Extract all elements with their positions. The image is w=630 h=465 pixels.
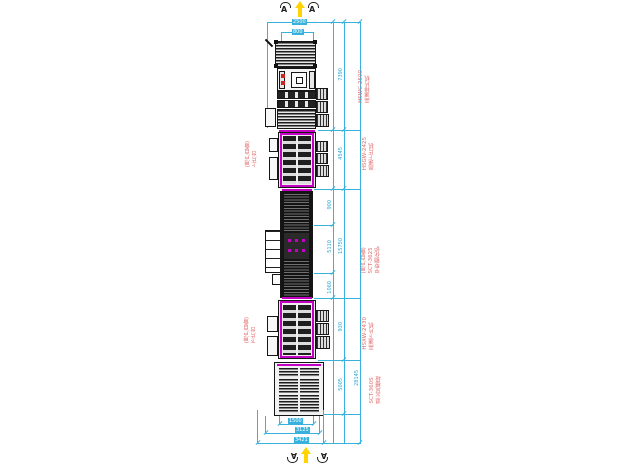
machine1-right-unit bbox=[316, 114, 329, 127]
drive-marker bbox=[288, 239, 291, 242]
indicator-red bbox=[281, 74, 285, 78]
section-letter: A bbox=[291, 450, 297, 461]
flow-direction-arrow-bottom-icon bbox=[301, 447, 311, 463]
furnace-model: SCT-3625 bbox=[368, 246, 374, 274]
dim-connector bbox=[314, 298, 361, 299]
drive-marker bbox=[288, 249, 291, 252]
dim-label-m4-zone: 930 bbox=[339, 322, 344, 332]
platform-step bbox=[272, 274, 281, 285]
machine5-belt-top bbox=[277, 364, 321, 366]
machine2-left-name: 上片台 bbox=[252, 141, 258, 167]
dim-label-furnace-seg1: 900 bbox=[328, 200, 333, 210]
transfer-conveyor-line-3 bbox=[282, 297, 312, 299]
label-machine5: SCT-360S 退火风栅段 bbox=[369, 376, 382, 404]
machine5-model: SCT-360S bbox=[369, 376, 375, 404]
dim-label-bottom-mid: 3125 bbox=[295, 427, 310, 433]
drive-marker bbox=[302, 249, 305, 252]
production-line-drawing: A A 2500 800 7390 4545 900 5110 1060 157… bbox=[0, 0, 630, 465]
machine4-body bbox=[278, 300, 316, 359]
section-letter: A bbox=[281, 4, 287, 15]
furnace-note: (用户自备) bbox=[361, 246, 367, 274]
dim-line-bottom-outer bbox=[257, 443, 324, 444]
machine2-model: HSGW-2425 bbox=[362, 137, 368, 170]
dim-label-furnace-total: 15750 bbox=[339, 238, 344, 254]
machine4-left-attachment bbox=[267, 316, 278, 332]
dim-label-furnace-seg3: 1060 bbox=[328, 281, 333, 294]
dim-line-bottom-mid bbox=[265, 433, 320, 434]
machine5-name: 退火风栅段 bbox=[376, 376, 382, 404]
ext-line bbox=[323, 410, 324, 444]
dim-label-top-inner: 800 bbox=[292, 29, 304, 35]
dim-tick bbox=[358, 440, 363, 445]
dim-connector bbox=[324, 443, 361, 444]
drive-marker bbox=[302, 239, 305, 242]
control-center-port bbox=[296, 77, 303, 84]
dim-connector bbox=[318, 130, 361, 131]
machine4-right-unit bbox=[316, 336, 330, 349]
dim-label-m2-zone: 4545 bbox=[339, 147, 344, 160]
dim-connector bbox=[314, 189, 361, 190]
machine2-belt-bottom bbox=[281, 185, 313, 187]
machine4-left-note: (用户自备) bbox=[244, 317, 250, 343]
arrow-stem bbox=[298, 8, 302, 17]
flow-direction-arrow-top-icon bbox=[295, 1, 305, 17]
machine1-vent-row bbox=[277, 91, 316, 99]
section-marker-top-left: A bbox=[280, 2, 292, 15]
indicator-red bbox=[281, 81, 285, 85]
machine2-belt-right bbox=[312, 133, 314, 187]
machine2-left-note: (用户自备) bbox=[245, 141, 251, 167]
furnace-drive-band bbox=[284, 233, 309, 259]
machine4-rack-right bbox=[298, 305, 311, 355]
dim-label-top-outer: 2500 bbox=[292, 19, 307, 25]
dim-label-m5-zone: 5005 bbox=[339, 378, 344, 391]
machine2-right-unit bbox=[316, 165, 329, 177]
dim-label-overall: 28145 bbox=[355, 370, 360, 386]
ext-line bbox=[257, 410, 258, 444]
machine2-body bbox=[278, 132, 316, 188]
machine4-belt-bottom bbox=[281, 356, 313, 358]
dim-connector bbox=[318, 360, 361, 361]
machine1-vent-row bbox=[277, 100, 316, 108]
control-right-strip bbox=[309, 71, 315, 89]
section-letter: A bbox=[309, 4, 315, 15]
arrow-head bbox=[301, 447, 311, 454]
machine1-left-attachment bbox=[265, 108, 276, 127]
machine2-right-unit bbox=[316, 153, 328, 164]
machine4-left-attachment bbox=[267, 336, 278, 356]
machine1-name: 高速排片机 bbox=[365, 70, 371, 103]
machine2-rack-left bbox=[283, 136, 296, 184]
machine1-model: HSWC-2500 bbox=[358, 70, 364, 103]
section-marker-top-right: A bbox=[308, 2, 320, 15]
machine1-right-unit bbox=[316, 101, 328, 113]
furnace-name: 平型钢化炉 bbox=[375, 246, 381, 274]
dim-line-bottom-inner bbox=[279, 424, 314, 425]
machine2-name: 高速上片机 bbox=[369, 137, 375, 170]
machine2-rack-right bbox=[298, 136, 311, 184]
control-center-housing bbox=[291, 72, 307, 88]
machine2-belt-top bbox=[281, 133, 313, 135]
corner-cap bbox=[274, 40, 278, 44]
machine1-control-section bbox=[277, 68, 316, 91]
drive-marker bbox=[295, 239, 298, 242]
corner-cap bbox=[313, 40, 317, 44]
machine4-right-unit bbox=[316, 310, 329, 322]
ext-line bbox=[281, 32, 282, 41]
furnace-body bbox=[280, 191, 313, 298]
furnace-rail-right bbox=[309, 192, 312, 297]
machine5-cell bbox=[300, 379, 319, 393]
machine5-body bbox=[274, 362, 324, 416]
machine1-right-unit bbox=[316, 88, 328, 100]
machine1-roller-bed-top bbox=[275, 41, 316, 68]
machine5-cell bbox=[300, 368, 319, 377]
machine5-cell bbox=[279, 379, 298, 393]
machine5-cell bbox=[279, 395, 298, 413]
dim-label-m1-zone: 7390 bbox=[339, 68, 344, 81]
machine2-left-attachment bbox=[269, 157, 278, 180]
dim-chain-mid bbox=[344, 22, 345, 443]
machine4-rack-left bbox=[283, 305, 296, 355]
control-left-strip bbox=[279, 71, 285, 89]
dim-label-bottom-inner: 1500 bbox=[288, 418, 303, 424]
label-machine2-left: (用户自备) 上片台 bbox=[245, 141, 258, 167]
label-furnace: (用户自备) SCT-3625 平型钢化炉 bbox=[361, 246, 381, 274]
label-machine4: HSXW-2430 高速下片机 bbox=[362, 317, 375, 350]
service-platform-ladder bbox=[265, 230, 281, 273]
machine5-cell bbox=[300, 395, 319, 413]
machine2-left-attachment bbox=[269, 138, 278, 152]
section-marker-bottom-right: A bbox=[316, 450, 328, 463]
arrow-head bbox=[295, 1, 305, 8]
dim-label-bottom-outer: 3421 bbox=[294, 437, 309, 443]
machine2-belt-left bbox=[280, 133, 282, 187]
label-machine4-left: (用户自备) 下片台 bbox=[244, 317, 257, 343]
section-letter: A bbox=[321, 450, 327, 461]
machine4-model: HSXW-2430 bbox=[362, 317, 368, 350]
label-machine2: HSGW-2425 高速上片机 bbox=[362, 137, 375, 170]
machine1-roller-bed-bottom bbox=[277, 109, 316, 129]
machine4-belt-top bbox=[281, 301, 313, 303]
dim-label-furnace-seg2: 5110 bbox=[328, 240, 333, 253]
drive-marker bbox=[295, 249, 298, 252]
machine4-right-unit bbox=[316, 323, 329, 335]
machine2-right-unit bbox=[316, 141, 328, 152]
machine5-cell bbox=[279, 368, 298, 377]
machine4-left-name: 下片台 bbox=[251, 317, 257, 343]
machine4-belt-right bbox=[312, 301, 314, 358]
machine4-belt-left bbox=[280, 301, 282, 358]
section-marker-bottom-left: A bbox=[286, 450, 298, 463]
dim-chain-inner bbox=[333, 22, 334, 443]
arrow-stem bbox=[304, 454, 308, 463]
label-machine1: HSWC-2500 高速排片机 bbox=[358, 70, 371, 103]
machine4-name: 高速下片机 bbox=[369, 317, 375, 350]
